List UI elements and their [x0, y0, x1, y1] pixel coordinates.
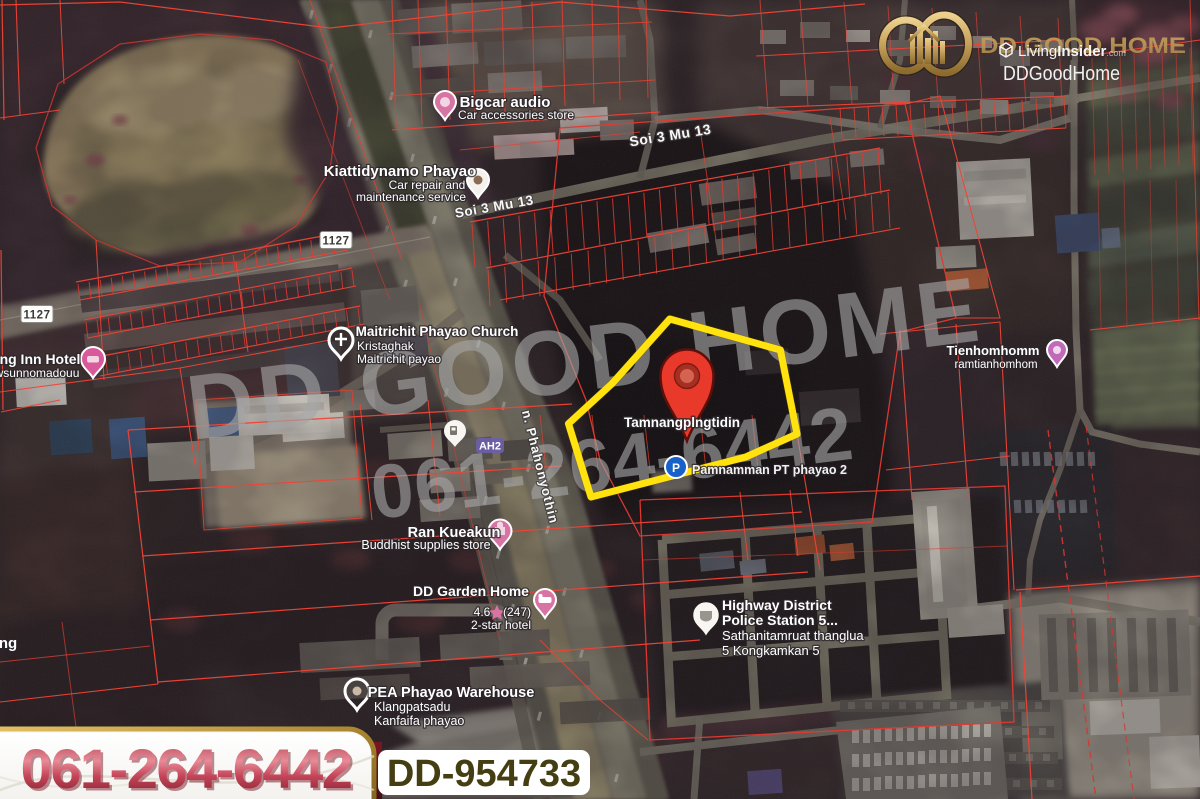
svg-text:Klangpatsadu: Klangpatsadu	[374, 700, 451, 714]
svg-text:P: P	[672, 461, 680, 475]
svg-text:(247): (247)	[503, 605, 531, 619]
svg-text:AH2: AH2	[479, 441, 501, 453]
svg-text:Sathanitamruat thanglua: Sathanitamruat thanglua	[722, 628, 864, 643]
svg-text:Maitrichit Phayao Church: Maitrichit Phayao Church	[356, 324, 519, 339]
svg-text:Maitrichit payao: Maitrichit payao	[357, 352, 441, 366]
svg-text:Buddhist supplies store: Buddhist supplies store	[361, 538, 490, 552]
svg-text:Police Station 5...: Police Station 5...	[722, 612, 838, 628]
svg-text:Pamnamman PT phayao 2: Pamnamman PT phayao 2	[692, 463, 847, 477]
svg-text:wsunnomadouu: wsunnomadouu	[0, 366, 79, 380]
svg-text:DD-954733: DD-954733	[387, 753, 581, 795]
svg-text:Kanfaifa phayao: Kanfaifa phayao	[374, 714, 464, 728]
svg-text:ng Inn Hotel: ng Inn Hotel	[0, 351, 80, 367]
svg-text:1127: 1127	[24, 310, 51, 322]
svg-text:061-264-6442: 061-264-6442	[21, 737, 352, 799]
svg-text:ng: ng	[0, 635, 17, 652]
svg-text:2-star hotel: 2-star hotel	[471, 618, 531, 632]
svg-text:DD Garden Home: DD Garden Home	[413, 583, 529, 599]
svg-text:Tamnangplngtidin: Tamnangplngtidin	[624, 415, 740, 430]
svg-text:5 Kongkamkan 5: 5 Kongkamkan 5	[722, 643, 820, 658]
svg-text:Kristaghak: Kristaghak	[357, 339, 415, 353]
svg-text:Tienhomhomm: Tienhomhomm	[947, 343, 1040, 358]
svg-text:Highway District: Highway District	[722, 597, 832, 613]
svg-text:4.6: 4.6	[474, 605, 491, 619]
svg-text:Car accessories store: Car accessories store	[458, 108, 574, 122]
svg-text:1127: 1127	[323, 236, 350, 248]
svg-text:ramtianhomhom: ramtianhomhom	[954, 359, 1037, 371]
svg-text:DDGoodHome: DDGoodHome	[1003, 63, 1120, 85]
svg-text:PEA Phayao Warehouse: PEA Phayao Warehouse	[368, 685, 535, 701]
svg-text:maintenance service: maintenance service	[356, 190, 466, 204]
